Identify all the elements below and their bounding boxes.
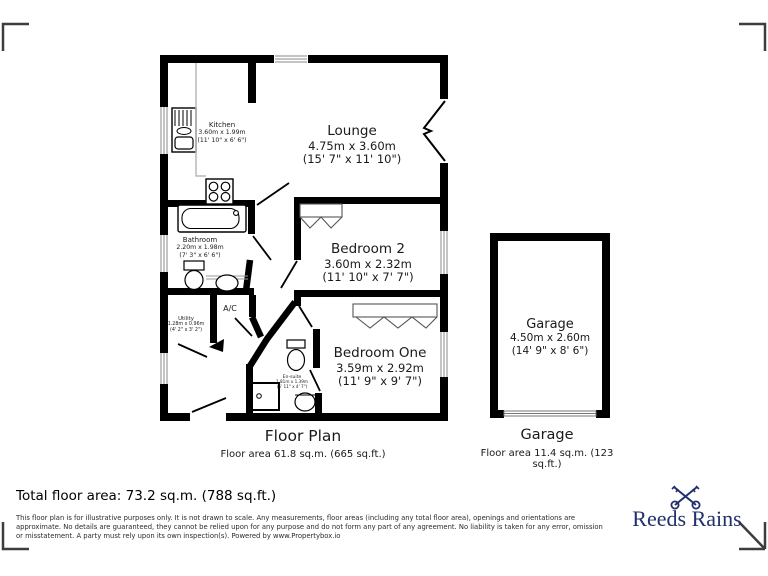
kitchen-counter-icon: [172, 108, 196, 152]
room-name: Lounge: [303, 124, 402, 140]
room-name: Bedroom 2: [322, 242, 413, 258]
room-dim-metric: 4.75m x 3.60m: [303, 140, 402, 154]
room-dim-imperial: (7' 3" x 6' 6"): [176, 252, 223, 259]
room-dim-imperial: (11' 9" x 9' 7"): [334, 375, 427, 389]
floorplan-area: Floor area 61.8 sq.m. (665 sq.ft.): [220, 449, 385, 460]
floorplan-page: Kitchen 3.60m x 1.99m (11' 10" x 6' 6") …: [0, 0, 768, 576]
room-label-kitchen: Kitchen 3.60m x 1.99m (11' 10" x 6' 6"): [197, 121, 246, 144]
garage-door-icon: [504, 411, 596, 416]
room-dim-metric: 4.50m x 2.60m: [510, 332, 590, 344]
room-label-lounge: Lounge 4.75m x 3.60m (15' 7" x 11' 10"): [303, 124, 402, 167]
wardrobe-icon-bed2: [300, 204, 342, 228]
room-dim-imperial: (11' 10" x 6' 6"): [197, 137, 246, 144]
bath-icon: [178, 205, 246, 232]
room-dim-imperial: (11' 10" x 7' 7"): [322, 271, 413, 285]
room-label-bedroom2: Bedroom 2 3.60m x 2.32m (11' 10" x 7' 7"…: [322, 242, 413, 285]
room-label-utility: Utility 1.28m x 0.96m (4' 2" x 3' 2"): [168, 316, 205, 334]
floorplan-title: Floor Plan: [265, 427, 341, 445]
room-name: Bedroom One: [334, 346, 427, 362]
room-label-ac: A/C: [223, 304, 237, 313]
disclaimer-text: This floor plan is for illustrative purp…: [16, 514, 606, 542]
ensuite-basin-icon: [295, 393, 315, 411]
room-name: Bathroom: [176, 236, 223, 244]
room-label-bedroom1: Bedroom One 3.59m x 2.92m (11' 9" x 9' 7…: [334, 346, 427, 389]
brand-logo-text: Reeds Rains: [632, 506, 741, 532]
room-label-garage: Garage 4.50m x 2.60m (14' 9" x 8' 6"): [510, 317, 590, 357]
room-dim-metric: 3.59m x 2.92m: [334, 362, 427, 376]
wardrobe-icon-bed1: [353, 304, 437, 328]
shower-icon: [252, 383, 279, 410]
room-name: Garage: [510, 317, 590, 332]
room-dim-imperial: (15' 7" x 11' 10"): [303, 153, 402, 167]
room-dim-imperial: (5' 11" x 4' 7"): [276, 385, 308, 390]
total-floor-area: Total floor area: 73.2 sq.m. (788 sq.ft.…: [16, 488, 276, 504]
room-dim-metric: 3.60m x 1.99m: [197, 129, 246, 136]
room-label-bathroom: Bathroom 2.20m x 1.98m (7' 3" x 6' 6"): [176, 236, 223, 259]
garage-title: Garage: [520, 427, 573, 443]
room-dim-imperial: (4' 2" x 3' 2"): [168, 328, 205, 334]
ensuite-toilet-icon: [287, 340, 305, 371]
room-dim-metric: 3.60m x 2.32m: [322, 258, 413, 272]
toilet-icon: [184, 261, 204, 290]
basin-icon: [216, 275, 238, 291]
room-dim-metric: 2.20m x 1.98m: [176, 244, 223, 251]
hob-icon: [206, 179, 233, 204]
worktop-edge-line: [196, 63, 206, 176]
room-label-ensuite: En-suite 1.81m x 1.39m (5' 11" x 4' 7"): [276, 375, 308, 390]
corner-marks: [3, 24, 765, 549]
garage-area: Floor area 11.4 sq.m. (123 sq.ft.): [472, 448, 622, 470]
room-name: Kitchen: [197, 121, 246, 129]
room-dim-imperial: (14' 9" x 8' 6"): [510, 345, 590, 357]
